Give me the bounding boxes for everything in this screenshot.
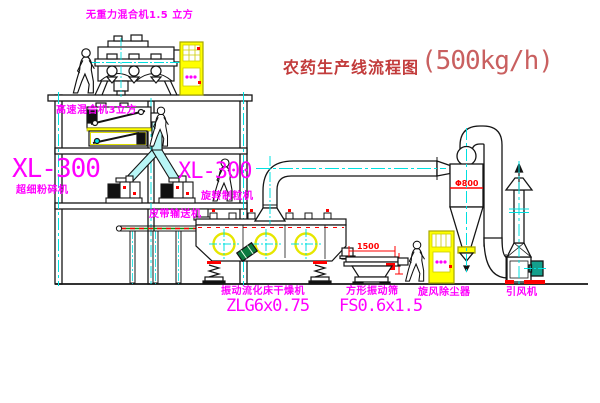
exhaust-duct-drawing [255,156,450,224]
sieve-drawing [344,246,408,284]
dimension-cyclone-diameter: Φ800 [455,180,479,188]
label-cyclone: 旋风除尘器 [418,288,471,298]
label-granulator: 旋转制粒机 [201,192,254,202]
label-dryer-model: ZLG6x0.75 [226,298,309,315]
person-icon [73,49,94,93]
label-belt-conveyor: 皮带输送机 [149,210,202,220]
label-fan: 引风机 [506,288,538,298]
diagram-title: 农药生产线流程图 (500kg/h) [283,46,553,78]
dimension-sieve-width: 1500 [357,243,379,251]
process-flow-diagram: 农药生产线流程图 (500kg/h) 无重力混合机1.5 立方 高速混合机3立方… [0,0,600,403]
control-cabinet-upper [180,42,203,95]
label-pulverizer-model: XL-300 [12,156,100,182]
title-text: 农药生产线流程图 [283,54,419,78]
label-gravity-mixer: 无重力混合机1.5 立方 [86,11,193,21]
belt-conveyor-drawing [116,226,201,284]
label-sieve-model: FS0.6x1.5 [339,298,422,315]
gravity-mixer-drawing [90,35,184,97]
label-pulverizer: 超细粉碎机 [16,186,69,196]
title-capacity: (500kg/h) [421,46,553,76]
control-cabinet-lower [429,231,454,283]
label-granulator-model: XL-300 [178,161,251,183]
label-high-speed-mixer: 高速混合机3立方 [56,106,137,116]
